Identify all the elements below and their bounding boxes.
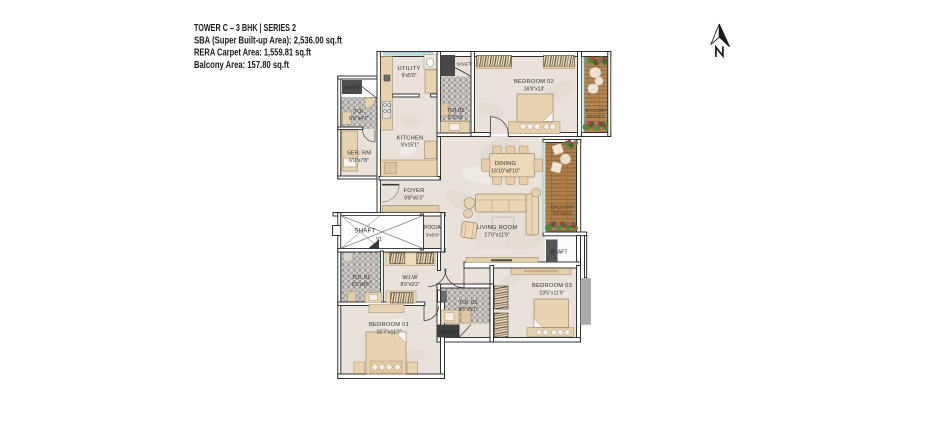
svg-text:Balcony Area: 157.80 sq.ft: Balcony Area: 157.80 sq.ft bbox=[194, 60, 290, 71]
svg-text:BALCONY: BALCONY bbox=[586, 108, 607, 113]
svg-text:SBA (Super Built-up Area): 2,5: SBA (Super Built-up Area): 2,536.00 sq.f… bbox=[194, 35, 343, 46]
svg-text:RERA Carpet Area: 1,559.81 sq.: RERA Carpet Area: 1,559.81 sq.ft bbox=[194, 48, 312, 59]
svg-text:KITCHEN: KITCHEN bbox=[397, 136, 424, 142]
svg-text:9'8"x5'3": 9'8"x5'3" bbox=[404, 196, 424, 202]
svg-text:5'9"x16'3": 5'9"x16'3" bbox=[553, 211, 573, 216]
svg-text:SHAFT: SHAFT bbox=[344, 85, 359, 90]
svg-text:BEDROOM 03: BEDROOM 03 bbox=[532, 283, 572, 289]
svg-text:6'6"x8'6": 6'6"x8'6" bbox=[351, 282, 370, 288]
svg-text:POOJA: POOJA bbox=[424, 225, 442, 231]
svg-text:SER. RM: SER. RM bbox=[347, 151, 371, 157]
svg-text:TOI. 01: TOI. 01 bbox=[352, 275, 371, 281]
svg-text:UTILITY: UTILITY bbox=[398, 66, 421, 72]
svg-text:13'5"x11'9": 13'5"x11'9" bbox=[539, 291, 564, 297]
svg-text:5'3"x9': 5'3"x9' bbox=[448, 115, 463, 121]
svg-text:W.I.W: W.I.W bbox=[403, 275, 419, 281]
svg-text:9'x15'1": 9'x15'1" bbox=[401, 143, 419, 149]
svg-text:TOI.02: TOI.02 bbox=[447, 108, 465, 114]
svg-text:V1: V1 bbox=[376, 237, 382, 243]
svg-text:BEDROOM 02: BEDROOM 02 bbox=[514, 79, 554, 85]
svg-text:15'7"x11'2": 15'7"x11'2" bbox=[376, 330, 401, 336]
svg-text:16'9"x13': 16'9"x13' bbox=[524, 87, 545, 93]
svg-text:TOI.: TOI. bbox=[353, 109, 365, 115]
svg-text:9'x5'0": 9'x5'0" bbox=[401, 73, 416, 79]
svg-text:SHAFT: SHAFT bbox=[456, 62, 471, 67]
svg-text:LIVING ROOM: LIVING ROOM bbox=[477, 225, 518, 231]
svg-text:8'6"x5'1": 8'6"x5'1" bbox=[458, 307, 477, 313]
svg-text:16'10"x8'10": 16'10"x8'10" bbox=[491, 169, 520, 175]
svg-text:BEDROOM 01: BEDROOM 01 bbox=[369, 322, 409, 328]
svg-text:DINING: DINING bbox=[495, 161, 517, 167]
svg-text:SHAFT: SHAFT bbox=[550, 250, 568, 256]
svg-text:6'0"x4'7": 6'0"x4'7" bbox=[349, 116, 369, 122]
svg-text:TOI. 03: TOI. 03 bbox=[459, 300, 478, 306]
svg-text:8'6"x9'2": 8'6"x9'2" bbox=[400, 282, 419, 288]
svg-text:17'0"x11'9": 17'0"x11'9" bbox=[484, 233, 509, 239]
svg-text:SHAFT: SHAFT bbox=[354, 229, 375, 235]
svg-text:3'x5'9": 3'x5'9" bbox=[426, 233, 440, 239]
svg-text:SHAFT: SHAFT bbox=[441, 330, 457, 336]
svg-text:FOYER: FOYER bbox=[404, 188, 425, 194]
svg-text:TOWER C – 3 BHK | SERIES 2: TOWER C – 3 BHK | SERIES 2 bbox=[194, 23, 296, 34]
svg-text:6'0"x7'8": 6'0"x7'8" bbox=[349, 158, 369, 164]
svg-text:9'0"x13'1": 9'0"x13'1" bbox=[587, 114, 606, 119]
